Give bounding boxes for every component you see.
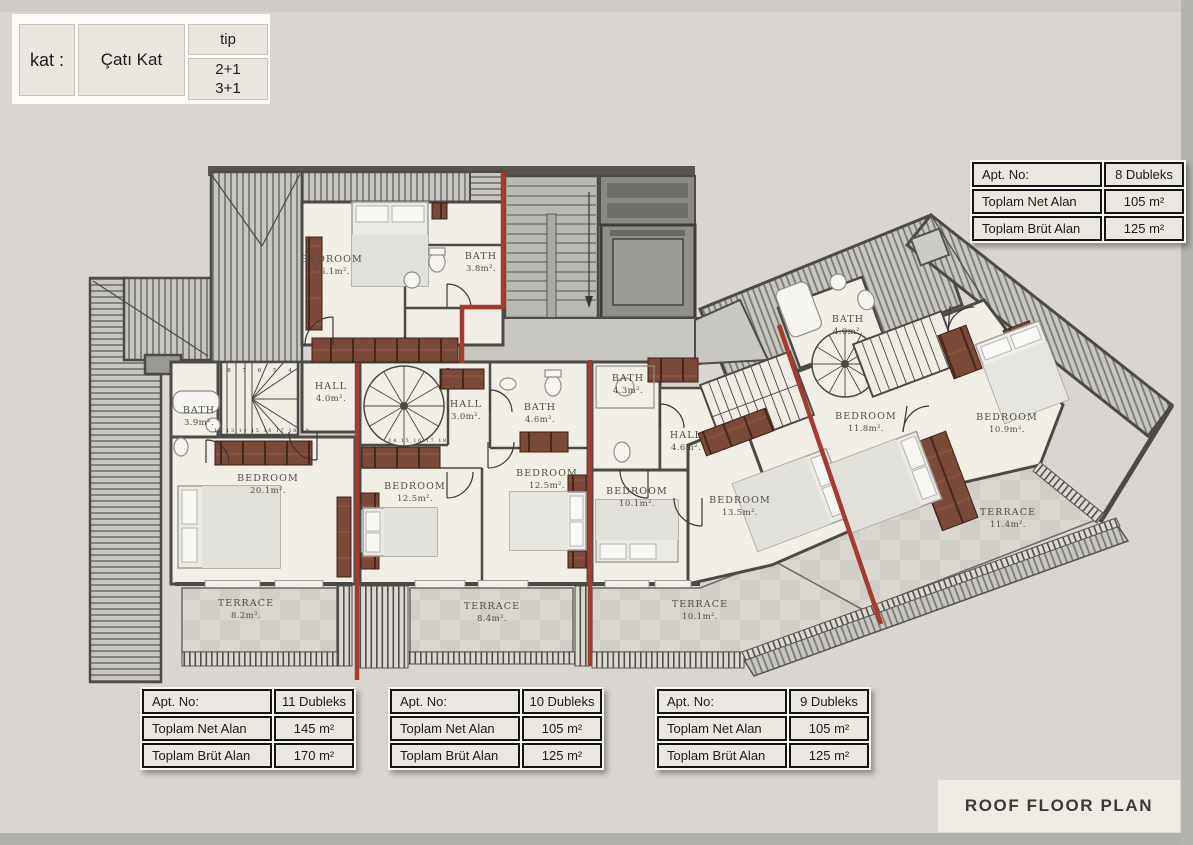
net-area-label: Toplam Net Alan (972, 189, 1102, 214)
apt-no-label: Apt. No: (142, 689, 272, 714)
roof-top-left-band (124, 278, 211, 360)
page-title: ROOF FLOOR PLAN (938, 780, 1180, 832)
sink (830, 274, 846, 290)
gross-area-label: Toplam Brüt Alan (142, 743, 272, 768)
table-row: Toplam Brüt Alan125 m² (972, 216, 1184, 241)
elevator-car (613, 239, 683, 305)
net-area-value: 145 m² (274, 716, 354, 741)
net-area-value: 105 m² (789, 716, 869, 741)
apt-10-table: Apt. No:10 Dubleks Toplam Net Alan105 m²… (388, 687, 604, 770)
spiral-stair-unit-10 (364, 366, 444, 446)
kat-value-text: Çatı Kat (101, 50, 162, 70)
toilet (545, 376, 561, 396)
gross-area-label: Toplam Brüt Alan (657, 743, 787, 768)
stair-core (460, 176, 768, 364)
net-area-label: Toplam Net Alan (657, 716, 787, 741)
bed-bedroom-12-5-a (363, 508, 437, 556)
gross-area-value: 125 m² (522, 743, 602, 768)
table-row: Toplam Net Alan145 m² (142, 716, 354, 741)
legend-kat-label: kat : (19, 24, 75, 96)
apt-no-value: 11 Dubleks (274, 689, 354, 714)
sink (404, 272, 420, 288)
net-area-label: Toplam Net Alan (142, 716, 272, 741)
apt-no-value: 9 Dubleks (789, 689, 869, 714)
legend-tip-values: 2+1 3+1 (188, 58, 268, 100)
legend-tip-label: tip (188, 24, 268, 55)
gross-area-value: 170 m² (274, 743, 354, 768)
bed-bedroom-20-1 (178, 486, 280, 568)
bed-bedroom-10-1 (596, 500, 678, 562)
toilet (174, 438, 188, 456)
kat-label-text: kat : (30, 50, 64, 71)
core-stair-stringer (547, 214, 556, 318)
sink (500, 378, 516, 390)
table-row: Toplam Net Alan105 m² (972, 189, 1184, 214)
roof-block-1 (211, 172, 302, 362)
table-row: Toplam Brüt Alan170 m² (142, 743, 354, 768)
table-row: Apt. No:10 Dubleks (390, 689, 602, 714)
tip-option-1: 2+1 (215, 60, 240, 79)
legend-kat-value: Çatı Kat (78, 24, 185, 96)
net-area-value: 105 m² (1104, 189, 1184, 214)
table-row: Apt. No:9 Dubleks (657, 689, 869, 714)
gross-area-label: Toplam Brüt Alan (972, 216, 1102, 241)
apt-no-value: 10 Dubleks (522, 689, 602, 714)
apt-11-table: Apt. No:11 Dubleks Toplam Net Alan145 m²… (140, 687, 356, 770)
apt-8-table: Apt. No:8 Dubleks Toplam Net Alan105 m² … (970, 160, 1186, 243)
table-row: Toplam Brüt Alan125 m² (657, 743, 869, 768)
bed-bedroom-12-5-b (510, 492, 586, 550)
table-row: Apt. No:8 Dubleks (972, 162, 1184, 187)
stair-numbers-lower: 12 13 14 15 16 17 18 19 (214, 428, 311, 434)
apt-no-label: Apt. No: (390, 689, 520, 714)
table-row: Apt. No:11 Dubleks (142, 689, 354, 714)
legend-panel: kat : Çatı Kat tip 2+1 3+1 (12, 14, 270, 104)
table-row: Toplam Brüt Alan125 m² (390, 743, 602, 768)
net-area-value: 105 m² (522, 716, 602, 741)
net-area-label: Toplam Net Alan (390, 716, 520, 741)
apt-9-table: Apt. No:9 Dubleks Toplam Net Alan105 m² … (655, 687, 871, 770)
table-row: Toplam Net Alan105 m² (390, 716, 602, 741)
apt-no-value: 8 Dubleks (1104, 162, 1184, 187)
apt-no-label: Apt. No: (657, 689, 787, 714)
apt-no-label: Apt. No: (972, 162, 1102, 187)
stair-numbers-spiral: 14 15 16 17 18 (388, 438, 447, 444)
table-row: Toplam Net Alan105 m² (657, 716, 869, 741)
gross-area-value: 125 m² (789, 743, 869, 768)
tip-option-2: 3+1 (215, 79, 240, 98)
tip-label-text: tip (220, 31, 236, 48)
gross-area-label: Toplam Brüt Alan (390, 743, 520, 768)
stair-numbers-upper: 8 7 6 5 4 (227, 368, 297, 374)
toilet (614, 442, 630, 462)
gross-area-value: 125 m² (1104, 216, 1184, 241)
